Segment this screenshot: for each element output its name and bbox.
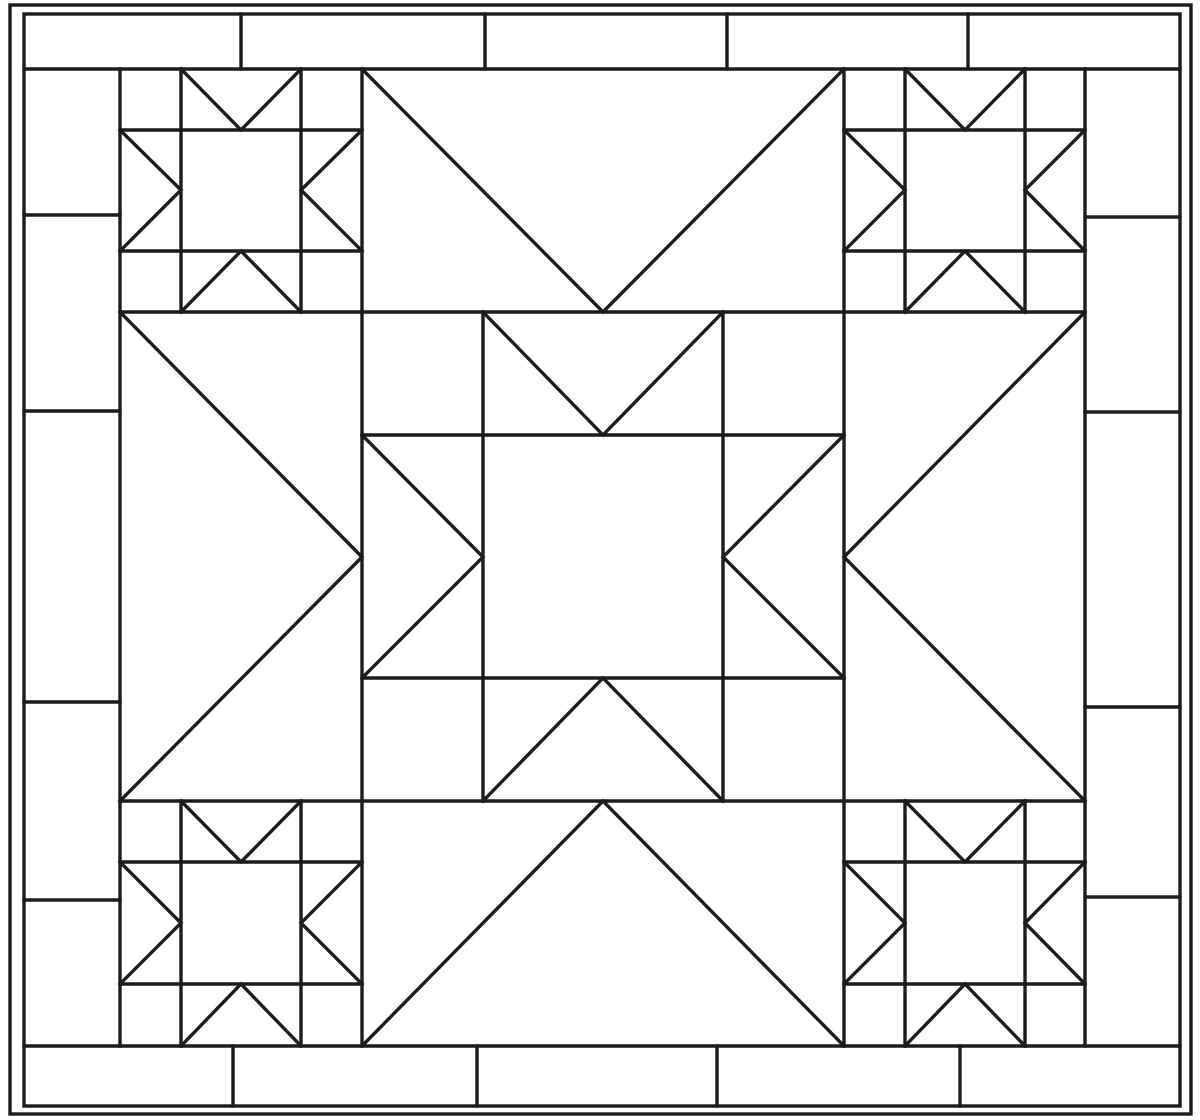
setting-triangles [120, 69, 1085, 1046]
goose-north [181, 801, 301, 862]
goose-west [120, 862, 181, 984]
quilt-sashing-grid [120, 69, 1085, 1046]
goose-east [301, 862, 362, 984]
goose-east [1025, 130, 1085, 251]
goose-west [844, 862, 905, 984]
star-block-bottom-right [844, 801, 1085, 1046]
star-block-center [362, 312, 844, 801]
setting-triangle-top [362, 69, 844, 312]
setting-triangle-right [844, 312, 1085, 801]
goose-north [181, 69, 301, 130]
goose-south [905, 984, 1025, 1046]
goose-east [1025, 862, 1085, 984]
setting-triangle-left [120, 312, 362, 801]
goose-north [905, 69, 1025, 130]
goose-north [483, 312, 723, 435]
goose-east [301, 130, 362, 251]
star-block-top-left [120, 69, 362, 312]
goose-south [181, 251, 301, 312]
outer-border-frame [10, 5, 1191, 1114]
goose-west [120, 130, 181, 251]
brick-border [24, 14, 1180, 1106]
quilt-coloring-pattern [0, 0, 1200, 1120]
outer-frame-line [10, 5, 1191, 1114]
goose-south [181, 984, 301, 1046]
goose-east [723, 435, 844, 678]
inner-frame-line [24, 14, 1180, 1106]
goose-south [483, 678, 723, 801]
goose-south [905, 251, 1025, 312]
setting-triangle-bottom [362, 801, 844, 1046]
goose-north [905, 801, 1025, 862]
star-block-bottom-left [120, 801, 362, 1046]
quilt-pattern-figure [0, 0, 1200, 1120]
star-block-top-right [844, 69, 1085, 312]
goose-west [362, 435, 483, 678]
goose-west [844, 130, 905, 251]
